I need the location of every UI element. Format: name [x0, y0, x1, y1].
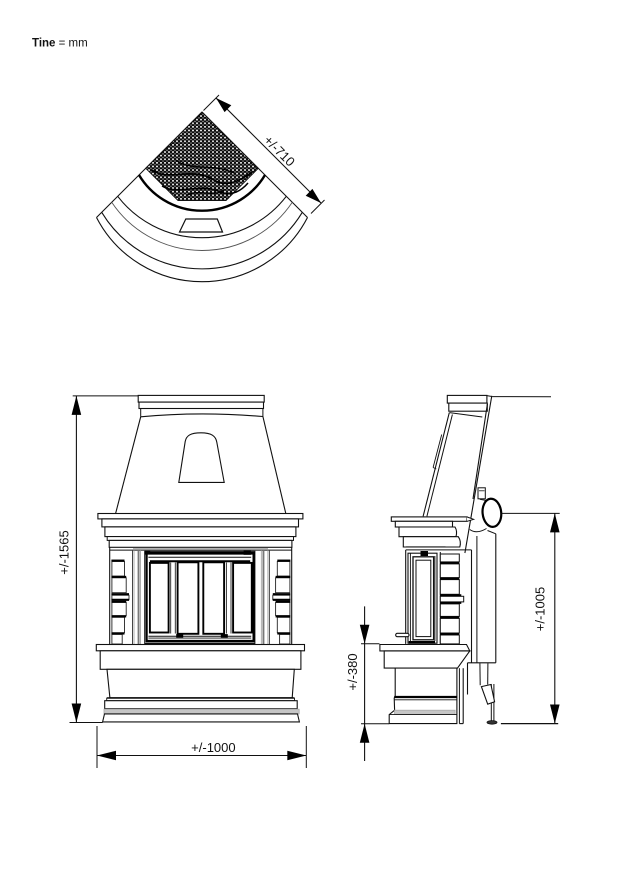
- svg-text:+/-1000: +/-1000: [191, 740, 235, 755]
- svg-text:Tine = mm: Tine = mm: [32, 38, 88, 50]
- svg-text:+/-710: +/-710: [261, 132, 298, 169]
- svg-text:+/-1565: +/-1565: [57, 530, 72, 574]
- svg-text:+/-380: +/-380: [345, 653, 360, 690]
- svg-text:+/-1005: +/-1005: [533, 587, 548, 631]
